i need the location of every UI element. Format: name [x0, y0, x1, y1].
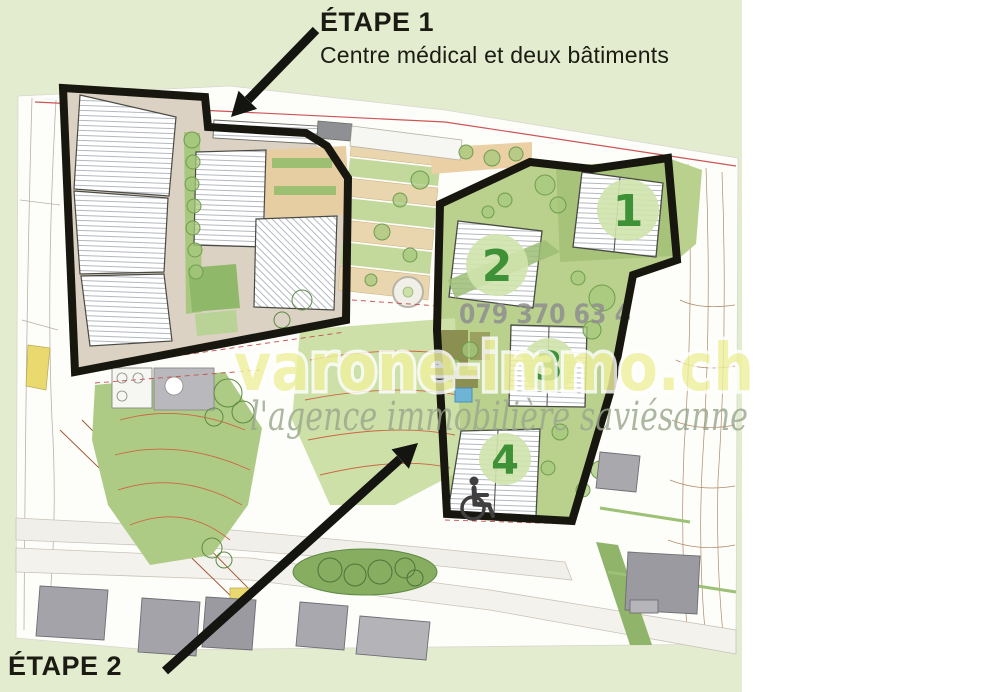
etape2-title: ÉTAPE 2: [8, 652, 122, 680]
etape1-annotation: ÉTAPE 1 Centre médical et deux bâtiments: [320, 8, 669, 67]
etape1-subtitle: Centre médical et deux bâtiments: [320, 43, 669, 67]
screenshot-root: 079 370 63 4 1 2 3 4 varone-immo.ch l'ag…: [0, 0, 1000, 692]
etape2-annotation: ÉTAPE 2: [8, 652, 122, 680]
etape1-title: ÉTAPE 1: [320, 8, 669, 36]
annotation-arrows: [0, 0, 1000, 692]
arrow-down-left-icon: [231, 30, 316, 117]
arrow-up-right-icon: [165, 443, 418, 671]
